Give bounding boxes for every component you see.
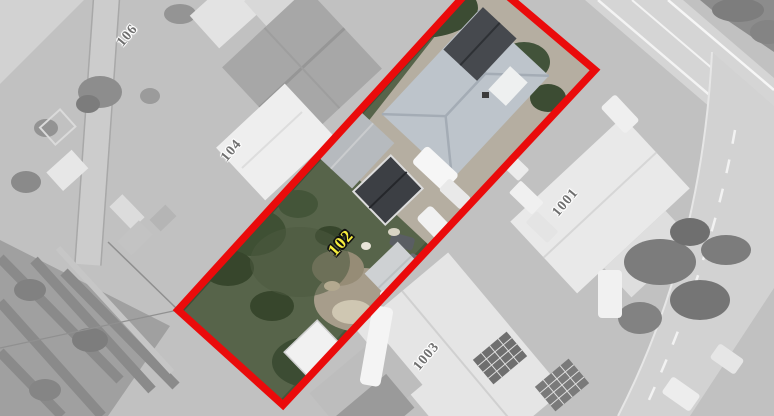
aerial-imagery (0, 0, 774, 416)
map-canvas[interactable]: 106 104 102 1001 1003 (0, 0, 774, 416)
